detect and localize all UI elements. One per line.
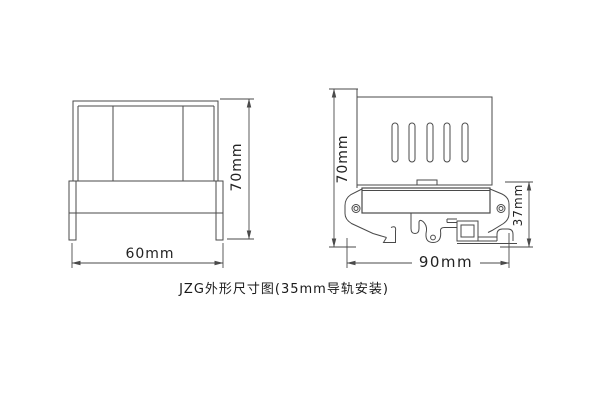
side-width-label: 90mm [419,253,473,271]
drawing-canvas: 70mm 60mm [0,0,600,400]
vent-slot [444,123,450,162]
ear-hole-left-inner [354,207,358,211]
din-clip-profile [384,213,458,243]
front-leg-left [69,181,76,240]
rail-flange-right [497,229,513,241]
side-height-dimension: 70mm [329,89,358,247]
ear-hole-right-inner [499,207,503,211]
din-rail-section [447,219,517,244]
front-cover-inner-line [78,106,214,181]
caption-title: JZG外形尺寸图(35mm导轨安装) [178,282,389,297]
rail-lip [447,219,457,223]
rail-flange-left [457,221,478,241]
latch-tab [417,180,437,185]
front-leg-right [216,181,223,240]
mount-ear-right [488,189,509,233]
ear-hole-right [497,205,505,213]
clip-hook [384,227,396,243]
front-height-dimension: 70mm [220,99,254,239]
vent-slot [427,123,433,162]
side-width-dimension: 90mm [347,233,509,271]
ear-hole-left [352,205,360,213]
front-view [69,101,223,240]
front-cover-outline [73,101,218,181]
side-height-label: 70mm [335,134,351,183]
front-width-label: 60mm [125,246,174,262]
clip-hole [431,235,436,240]
rail-web [478,237,497,241]
terminal-band [362,188,490,213]
clip-lobe [426,228,457,243]
rail-flange-left-inner [461,225,474,237]
vent-slot [462,123,468,162]
dimension-drawing: 70mm 60mm [0,0,600,400]
rail-height-dimension: 37mm [500,182,533,247]
vent-slot [409,123,415,162]
clip-spring-finger [411,213,427,234]
front-height-label: 70mm [229,142,245,191]
side-view [345,89,517,244]
side-case-outline [357,97,492,185]
vent-slot [392,123,398,162]
front-base-outline [69,181,223,213]
rail-height-label: 37mm [511,184,525,227]
vent-slots [392,123,468,162]
front-width-dimension: 60mm [72,243,223,268]
